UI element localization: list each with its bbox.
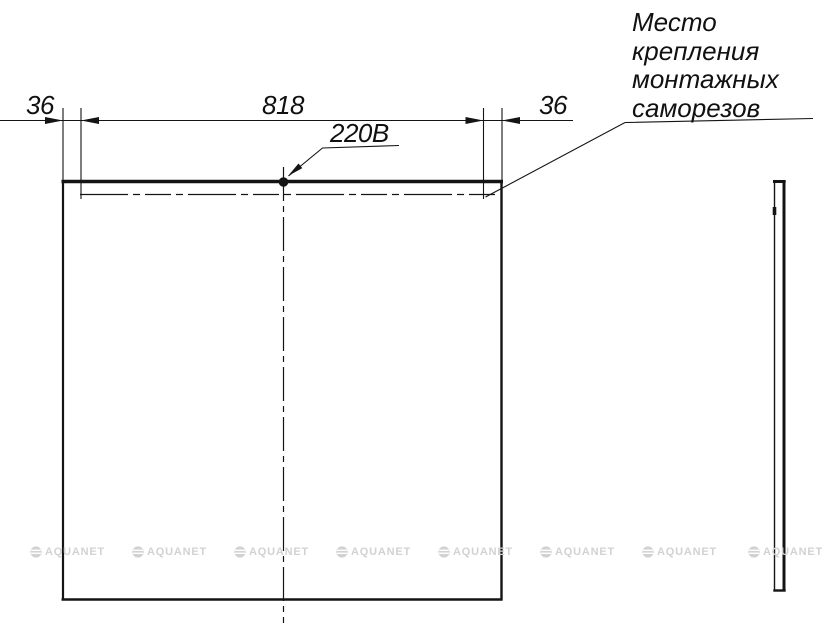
watermark: AQUANET — [336, 545, 411, 558]
power-connection-dot — [279, 177, 289, 187]
watermark: AQUANET — [132, 545, 207, 558]
aquanet-logo-icon — [540, 546, 552, 558]
aquanet-logo-icon — [30, 546, 42, 558]
arrowhead-right-offset — [502, 117, 520, 124]
front-view-outline — [62, 180, 504, 601]
watermark-text: AQUANET — [657, 546, 717, 558]
watermark-text: AQUANET — [555, 546, 615, 558]
power-leader-arrowhead — [288, 164, 302, 177]
power-leader-line — [289, 146, 400, 177]
watermark: AQUANET — [438, 545, 513, 558]
aquanet-logo-icon — [748, 546, 760, 558]
watermark-text: AQUANET — [453, 546, 513, 558]
technical-drawing: 36 818 36 220В Место крепления монтажных… — [0, 0, 822, 642]
watermark-text: AQUANET — [147, 546, 207, 558]
power-label: 220В — [330, 118, 389, 149]
watermark-text: AQUANET — [351, 546, 411, 558]
watermark: AQUANET — [30, 545, 105, 558]
watermark: AQUANET — [748, 545, 822, 558]
dimension-span-value: 818 — [262, 90, 304, 121]
mounting-note-leader-line — [486, 119, 814, 198]
dimension-left-offset-value: 36 — [26, 90, 54, 121]
mounting-note-label: Место крепления монтажных саморезов — [632, 8, 822, 122]
watermark: AQUANET — [642, 545, 717, 558]
watermark: AQUANET — [234, 545, 309, 558]
side-view-outline — [773, 181, 786, 592]
arrowhead-span-right — [466, 117, 484, 124]
aquanet-logo-icon — [642, 546, 654, 558]
aquanet-logo-icon — [132, 546, 144, 558]
dimension-right-offset-value: 36 — [539, 90, 567, 121]
watermark: AQUANET — [540, 545, 615, 558]
watermark-text: AQUANET — [45, 546, 105, 558]
arrowhead-span-left — [81, 117, 99, 124]
aquanet-logo-icon — [336, 546, 348, 558]
watermark-text: AQUANET — [249, 546, 309, 558]
aquanet-logo-icon — [438, 546, 450, 558]
watermark-text: AQUANET — [763, 546, 822, 558]
aquanet-logo-icon — [234, 546, 246, 558]
